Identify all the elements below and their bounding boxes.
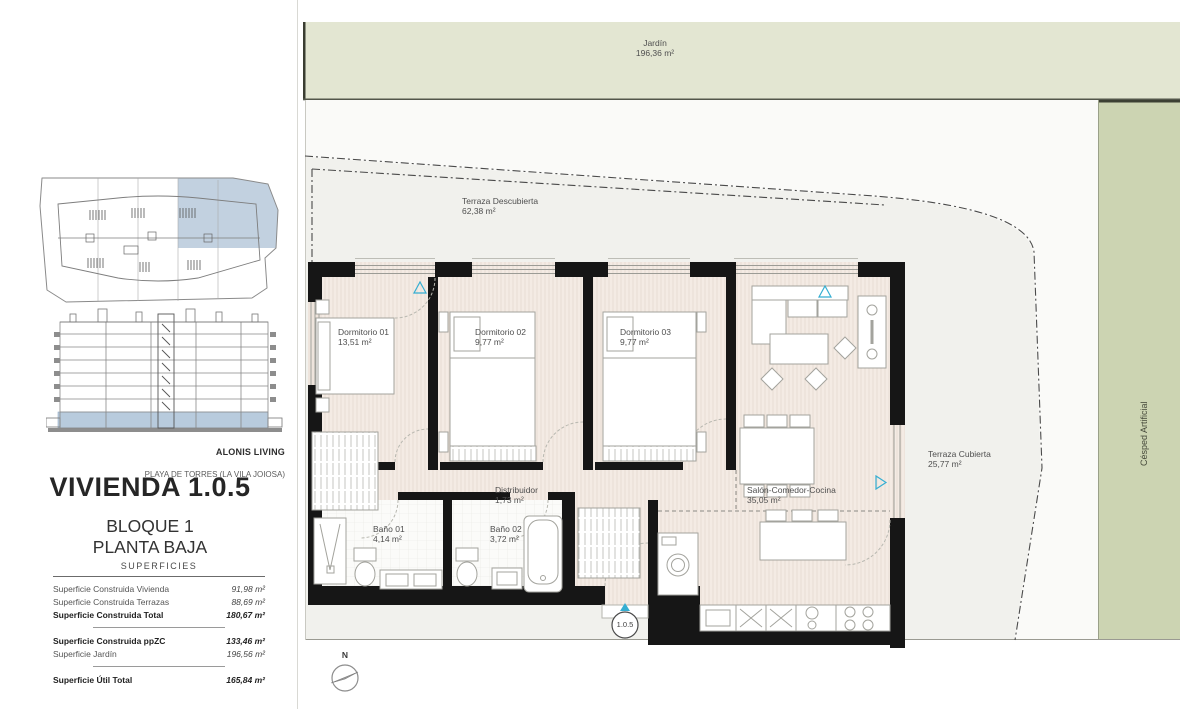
label-bano-02: Baño 02 3,72 m² xyxy=(490,524,522,544)
wardrobe-dorm02 xyxy=(450,446,536,461)
north-indicator xyxy=(331,665,358,691)
building-elevation-diagram xyxy=(46,306,284,442)
floorplan-drawing xyxy=(300,0,1200,709)
site-keyplan-diagram xyxy=(28,162,290,312)
radiator-detail xyxy=(858,296,886,368)
superficies-heading: SUPERFICIES xyxy=(53,561,265,577)
label-bano-01: Baño 01 4,14 m² xyxy=(373,524,405,544)
table-row: Superficie Construida Vivienda 91,98 m² xyxy=(53,582,265,595)
label-dormitorio-02: Dormitorio 02 9,77 m² xyxy=(475,327,526,347)
north-label: N xyxy=(338,650,352,660)
wardrobe-dorm03 xyxy=(603,446,696,461)
table-row: Superficie Construida Total 180,67 m² xyxy=(53,608,265,621)
table-row: Superficie Útil Total 165,84 m² xyxy=(53,673,265,686)
unit-code-label: 1.0.5 xyxy=(610,620,640,629)
label-distribuidor: Distribuidor 1,73 m² xyxy=(495,485,538,505)
hall-closet xyxy=(312,432,378,510)
label-jardin: Jardín 196,36 m² xyxy=(600,38,710,58)
block-floor-subtitle: BLOQUE 1 PLANTA BAJA xyxy=(0,516,300,558)
entry-closet xyxy=(578,508,640,578)
floorplan-sheet: ALONIS LIVING PLAYA DE TORRES (LA VILA J… xyxy=(0,0,1200,709)
table-row: Superficie Construida Terrazas 88,69 m² xyxy=(53,595,265,608)
superficies-table: SUPERFICIES Superficie Construida Vivien… xyxy=(53,561,265,686)
label-terraza-descubierta: Terraza Descubierta 62,38 m² xyxy=(462,196,538,216)
label-terraza-cubierta: Terraza Cubierta 25,77 m² xyxy=(928,449,991,469)
label-cesped-artificial: Césped Artificial xyxy=(1139,401,1150,466)
kitchen-counter xyxy=(700,605,890,631)
label-salon-comedor-cocina: Salón-Comedor-Cocina 35,05 m² xyxy=(747,485,836,505)
washer-appliance xyxy=(658,533,698,595)
brand-name: ALONIS LIVING xyxy=(216,447,285,457)
jardin-zone xyxy=(303,22,1180,100)
page-title: VIVIENDA 1.0.5 xyxy=(0,472,300,503)
table-divider xyxy=(93,627,224,628)
table-divider xyxy=(93,666,224,667)
sidebar-divider xyxy=(297,0,298,709)
block-label: BLOQUE 1 xyxy=(106,516,194,536)
label-dormitorio-03: Dormitorio 03 9,77 m² xyxy=(620,327,671,347)
label-dormitorio-01: Dormitorio 01 13,51 m² xyxy=(338,327,389,347)
floor-label: PLANTA BAJA xyxy=(93,537,207,557)
cesped-artificial-zone xyxy=(1098,100,1180,640)
table-row: Superficie Construida ppZC 133,46 m² xyxy=(53,634,265,647)
table-row: Superficie Jardín 196,56 m² xyxy=(53,647,265,660)
kitchen-island xyxy=(760,510,846,560)
